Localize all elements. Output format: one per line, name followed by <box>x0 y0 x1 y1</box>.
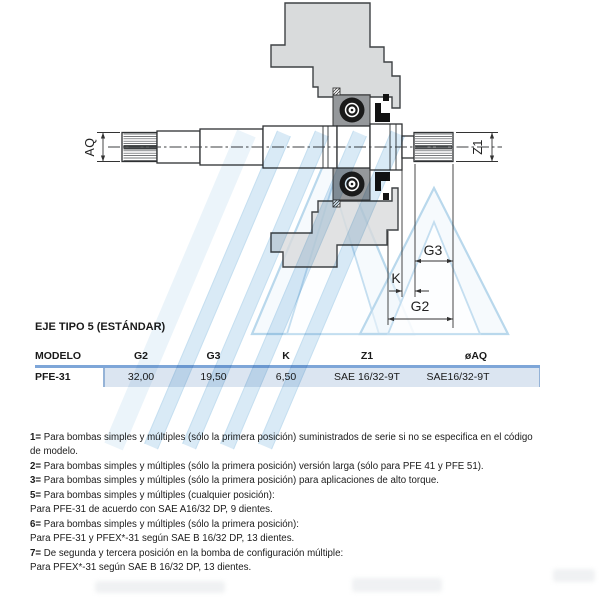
footnote-line: 5= Para bombas simples y múltiples (cual… <box>30 489 592 503</box>
dim-label-aq: AQ <box>82 132 98 162</box>
header-z1: Z1 <box>322 350 412 362</box>
ball-bearing-bottom <box>340 172 365 197</box>
catalog-page: AQ Z1 G3 K G2 EJE TIPO 5 (ESTÁNDAR) MODE… <box>0 0 600 600</box>
footnote-line: 2= Para bombas simples y múltiples (sólo… <box>30 460 592 474</box>
cell-z1: SAE 16/32-9T <box>322 368 412 387</box>
footnote-line: 3= Para bombas simples y múltiples (sólo… <box>30 474 592 488</box>
header-aq: øAQ <box>412 350 540 362</box>
header-modelo: MODELO <box>35 350 105 362</box>
footnote-line: Para PFE-31 de acuerdo con SAE A16/32 DP… <box>30 503 592 517</box>
header-g2: G2 <box>105 350 177 362</box>
shaft-seal-top <box>375 103 390 122</box>
watermark-blob <box>352 578 442 592</box>
spec-table-section: EJE TIPO 5 (ESTÁNDAR) MODELO G2 G3 K Z1 … <box>35 321 540 387</box>
header-k: K <box>250 350 322 362</box>
cell-aq: SAE16/32-9T <box>412 368 540 387</box>
footnote-line: Para PFE-31 y PFEX*-31 según SAE B 16/32… <box>30 532 592 546</box>
shaft-seal-bottom <box>375 172 390 191</box>
cell-g2: 32,00 <box>105 368 177 387</box>
footnote-line: 1= Para bombas simples y múltiples (sólo… <box>30 431 592 445</box>
dim-label-z1: Z1 <box>470 132 486 162</box>
dim-label-k: K <box>386 270 406 286</box>
footnote-line: 7= De segunda y tercera posición en la b… <box>30 547 592 561</box>
table-row-pfe31: PFE-31 32,00 19,50 6,50 SAE 16/32-9T SAE… <box>35 368 540 387</box>
footnote-line: de modelo. <box>30 445 592 459</box>
dim-label-g3: G3 <box>418 242 448 258</box>
table-title: EJE TIPO 5 (ESTÁNDAR) <box>35 321 540 335</box>
footnote-line: 6= Para bombas simples y múltiples (sólo… <box>30 518 592 532</box>
table-header-row: MODELO G2 G3 K Z1 øAQ <box>35 335 540 368</box>
ball-bearing-top <box>340 98 365 123</box>
shaft-technical-drawing <box>0 0 600 340</box>
watermark-blob <box>95 581 225 593</box>
cell-modelo: PFE-31 <box>35 368 105 387</box>
footnote-line: Para PFEX*-31 según SAE B 16/32 DP, 13 d… <box>30 561 592 575</box>
cell-k: 6,50 <box>250 368 322 387</box>
header-g3: G3 <box>177 350 250 362</box>
footnotes: 1= Para bombas simples y múltiples (sólo… <box>30 431 592 576</box>
dim-label-g2: G2 <box>405 298 435 314</box>
cell-g3: 19,50 <box>177 368 250 387</box>
